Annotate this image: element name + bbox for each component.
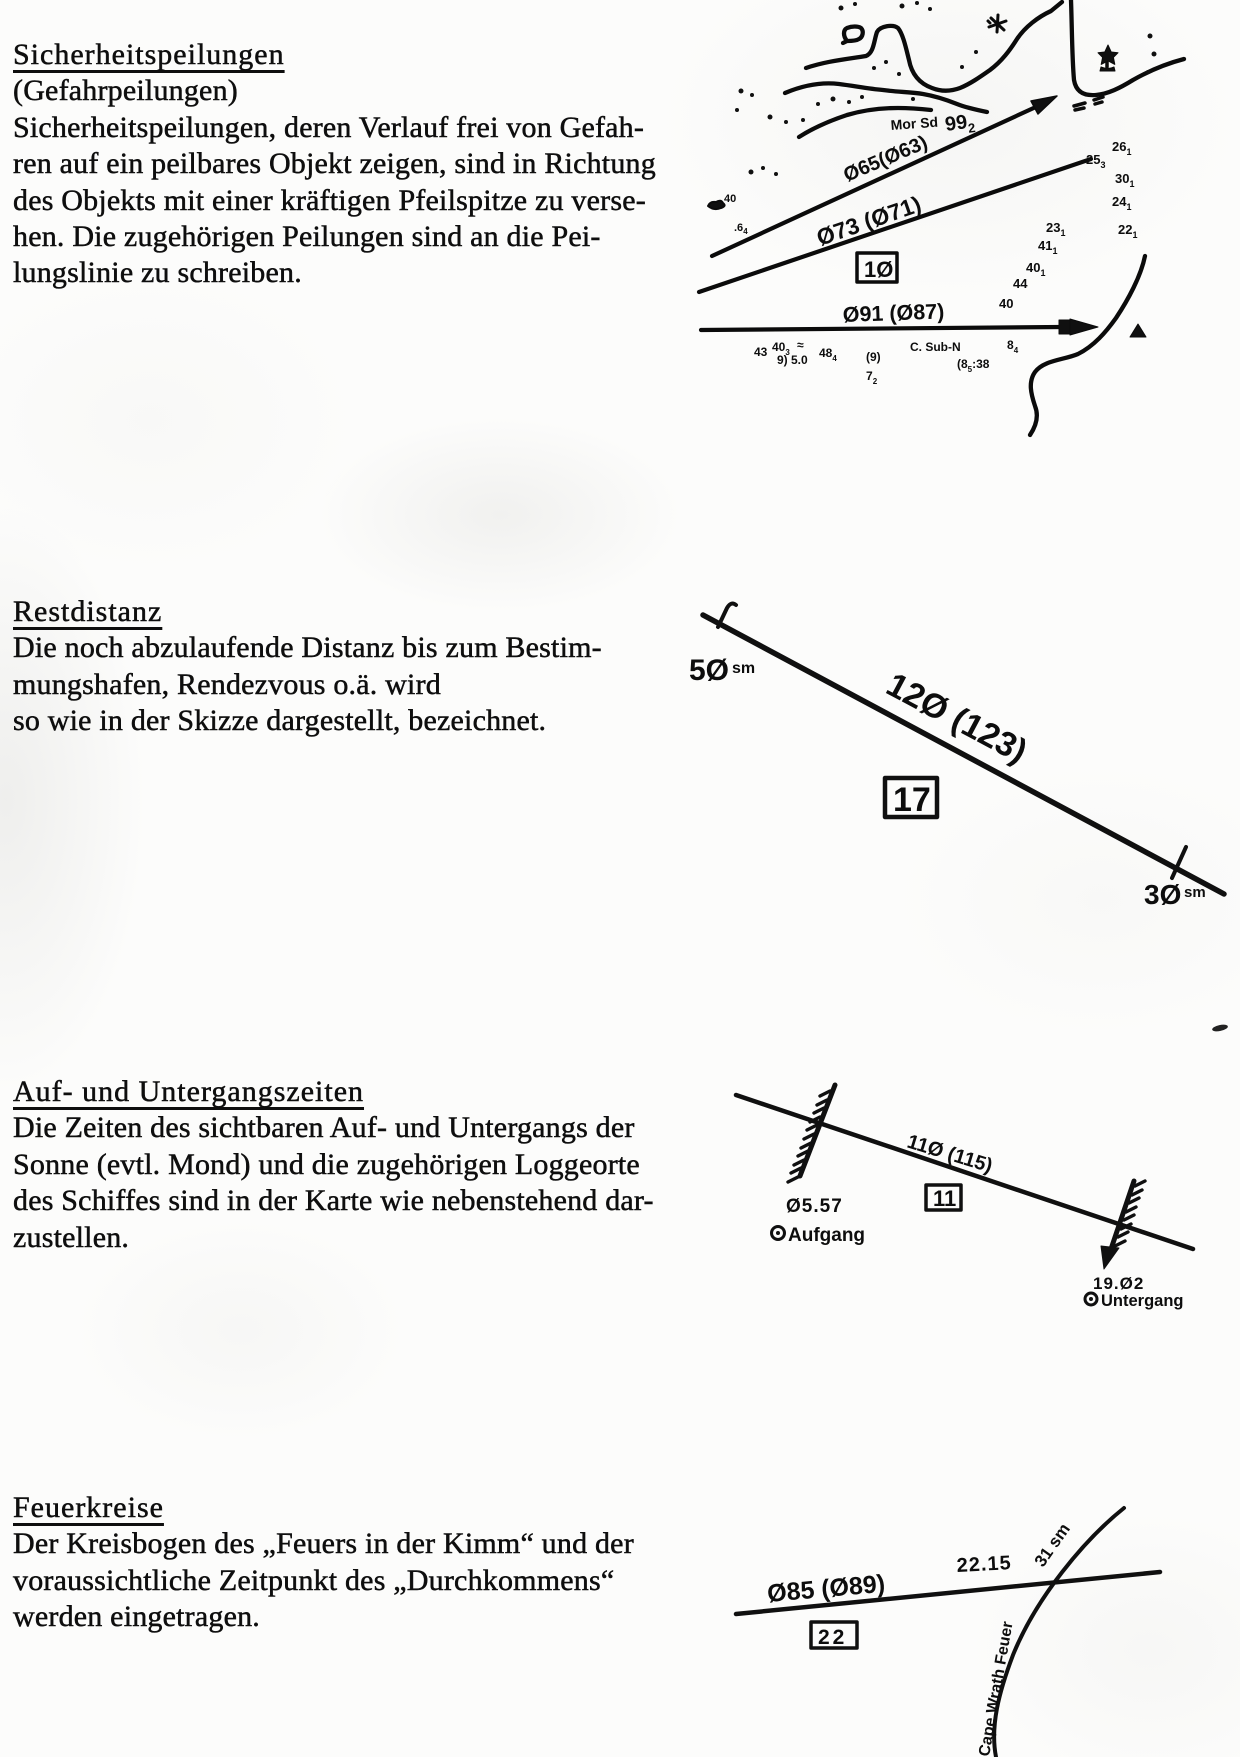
svg-text:40: 40: [999, 296, 1013, 311]
svg-text:Untergang: Untergang: [1101, 1292, 1184, 1310]
svg-text:≈: ≈: [797, 338, 804, 352]
svg-text:Aufgang: Aufgang: [788, 1225, 865, 1246]
svg-text:411: 411: [1038, 238, 1057, 256]
svg-text:C. Sub-N: C. Sub-N: [910, 340, 961, 354]
svg-text:72: 72: [866, 369, 878, 386]
svg-text:11: 11: [933, 1186, 956, 1211]
svg-text:261: 261: [1112, 139, 1131, 157]
svg-text:sm: sm: [732, 660, 755, 677]
svg-text:(9): (9): [866, 350, 881, 364]
svg-text:241: 241: [1112, 194, 1131, 212]
svg-text:22: 22: [818, 1626, 847, 1649]
svg-text:253: 253: [1086, 152, 1105, 170]
svg-text:22.15: 22.15: [956, 1552, 1012, 1577]
svg-text:Mor Sd: Mor Sd: [890, 114, 938, 133]
svg-text:19.Ø2: 19.Ø2: [1093, 1274, 1144, 1293]
svg-text:sm: sm: [1184, 884, 1206, 901]
svg-text:221: 221: [1118, 222, 1137, 240]
svg-text:84: 84: [1007, 338, 1019, 355]
svg-text:1Ø: 1Ø: [864, 257, 893, 282]
svg-text:12Ø (123): 12Ø (123): [880, 666, 1033, 771]
svg-text:Cape Wrath Feuer: Cape Wrath Feuer: [976, 1620, 1016, 1757]
svg-text:9) 5.0: 9) 5.0: [777, 353, 808, 367]
svg-text:(85:38: (85:38: [957, 357, 990, 374]
svg-text:Ø5.57: Ø5.57: [786, 1196, 843, 1217]
svg-text:484: 484: [819, 346, 837, 363]
svg-text:401: 401: [1026, 260, 1045, 278]
svg-text:231: 231: [1046, 220, 1065, 238]
svg-text:17: 17: [893, 781, 931, 819]
svg-text:.64: .64: [734, 222, 748, 236]
svg-text:43: 43: [754, 345, 768, 359]
svg-text:3Ø: 3Ø: [1144, 879, 1181, 910]
svg-text:44: 44: [1013, 276, 1028, 291]
svg-text:301: 301: [1115, 171, 1134, 189]
svg-text:11Ø (115): 11Ø (115): [905, 1131, 995, 1178]
svg-text:Ø91 (Ø87): Ø91 (Ø87): [842, 299, 944, 327]
svg-text:992: 992: [944, 110, 977, 139]
svg-text:40: 40: [724, 193, 736, 205]
svg-text:5Ø: 5Ø: [689, 654, 729, 687]
